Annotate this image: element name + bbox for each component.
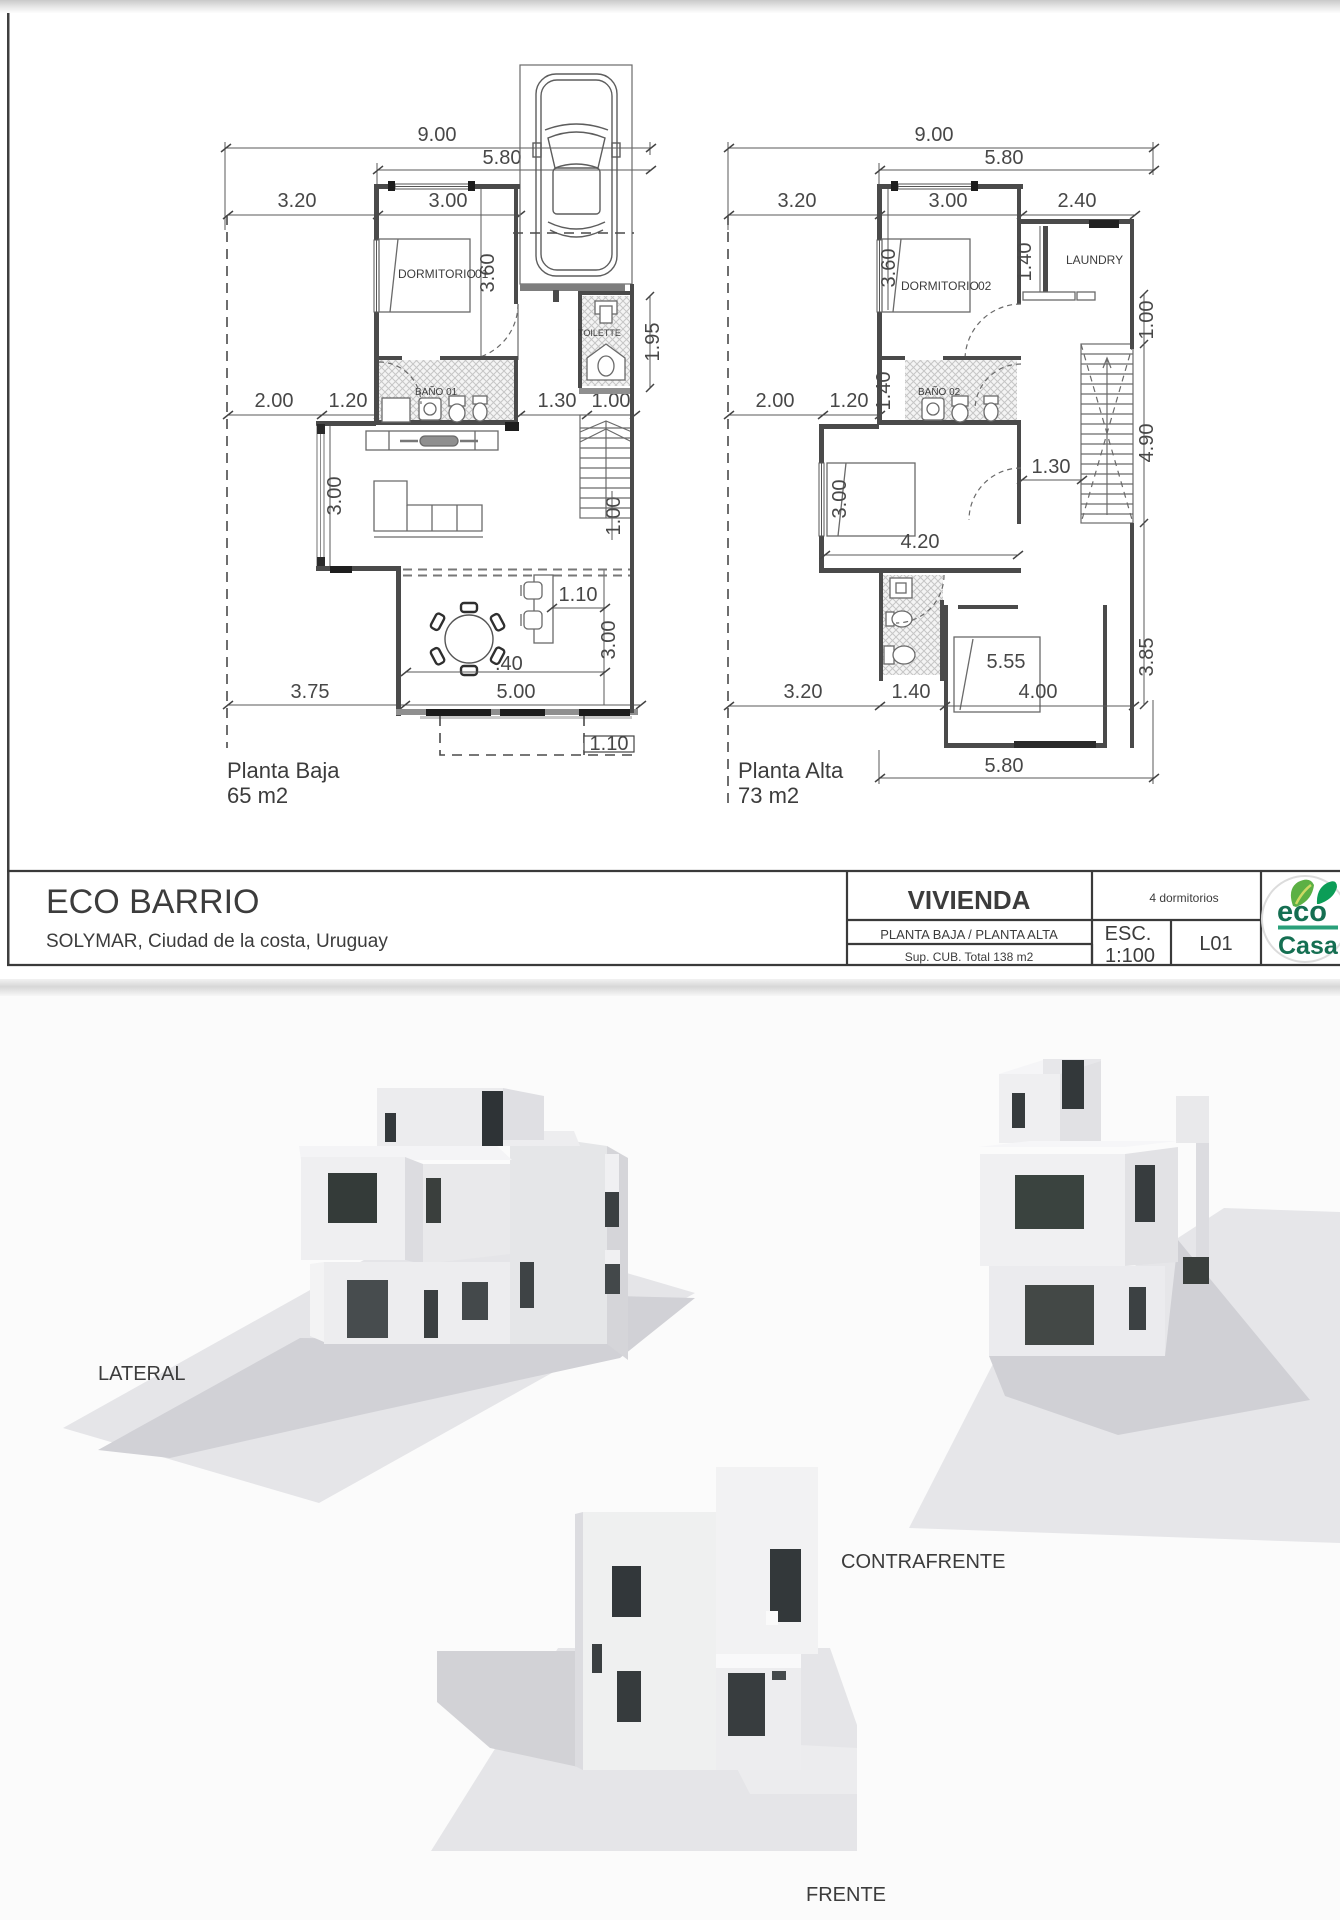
svg-text:65 m2: 65 m2 — [227, 783, 288, 808]
svg-text:5.00: 5.00 — [497, 681, 536, 703]
svg-text:1.10: 1.10 — [559, 584, 598, 606]
svg-text:1.30: 1.30 — [1032, 456, 1071, 478]
svg-text:DORMITORIO: DORMITORIO — [398, 267, 476, 281]
svg-text:4.20: 4.20 — [901, 531, 940, 553]
svg-text:DORMITORIO: DORMITORIO — [901, 279, 979, 293]
svg-text:L01: L01 — [1199, 933, 1232, 955]
svg-text:3.00: 3.00 — [598, 621, 620, 660]
svg-text:3.00: 3.00 — [429, 190, 468, 212]
svg-text:9.00: 9.00 — [915, 124, 954, 146]
svg-text:01: 01 — [475, 267, 489, 281]
svg-text:3.00: 3.00 — [929, 190, 968, 212]
svg-text:3.00: 3.00 — [324, 477, 346, 516]
svg-text:1.40: 1.40 — [1014, 243, 1036, 282]
svg-text:2.40: 2.40 — [1058, 190, 1097, 212]
svg-text:4 dormitorios: 4 dormitorios — [1149, 891, 1218, 905]
svg-text:LATERAL: LATERAL — [98, 1363, 185, 1385]
svg-text:3.00: 3.00 — [829, 480, 851, 519]
svg-text:Planta Alta: Planta Alta — [738, 758, 844, 783]
svg-text:2.00: 2.00 — [255, 390, 294, 412]
svg-text:PLANTA BAJA / PLANTA ALTA: PLANTA BAJA / PLANTA ALTA — [880, 927, 1058, 942]
svg-text:SOLYMAR, Ciudad de la costa, U: SOLYMAR, Ciudad de la costa, Uruguay — [46, 931, 388, 952]
svg-text:1.95: 1.95 — [642, 323, 664, 362]
svg-text:1:100: 1:100 — [1105, 945, 1155, 967]
svg-text:4.90: 4.90 — [1136, 424, 1158, 463]
svg-text:3.20: 3.20 — [784, 681, 823, 703]
svg-text:eco: eco — [1277, 896, 1327, 928]
svg-text:1.40: 1.40 — [892, 681, 931, 703]
svg-text:9.00: 9.00 — [418, 124, 457, 146]
svg-text:2.00: 2.00 — [756, 390, 795, 412]
svg-text:ECO BARRIO: ECO BARRIO — [46, 883, 259, 921]
svg-text:5.80: 5.80 — [483, 147, 522, 169]
svg-text:3.20: 3.20 — [278, 190, 317, 212]
svg-text:ESC.: ESC. — [1105, 923, 1152, 945]
svg-text:1.20: 1.20 — [830, 390, 869, 412]
svg-text:FRENTE: FRENTE — [806, 1884, 886, 1906]
svg-text:Casa: Casa — [1278, 932, 1339, 960]
svg-text:02: 02 — [978, 279, 992, 293]
svg-text:Sup. CUB. Total 138 m2: Sup. CUB. Total 138 m2 — [905, 950, 1034, 964]
svg-text:4.00: 4.00 — [1019, 681, 1058, 703]
svg-text:5.80: 5.80 — [985, 755, 1024, 777]
svg-text:1.20: 1.20 — [329, 390, 368, 412]
svg-text:3.20: 3.20 — [778, 190, 817, 212]
svg-text:1.30: 1.30 — [538, 390, 577, 412]
svg-text:5.80: 5.80 — [985, 147, 1024, 169]
svg-text:CONTRAFRENTE: CONTRAFRENTE — [841, 1551, 1005, 1573]
svg-text:73 m2: 73 m2 — [738, 783, 799, 808]
svg-text:TOILETTE: TOILETTE — [578, 328, 621, 338]
svg-text:1.40: 1.40 — [873, 372, 895, 411]
svg-text:LAUNDRY: LAUNDRY — [1066, 253, 1123, 267]
svg-text:5.55: 5.55 — [987, 651, 1026, 673]
svg-text:1.00: 1.00 — [1136, 301, 1158, 340]
svg-text:1.10: 1.10 — [590, 733, 629, 755]
svg-text:3.75: 3.75 — [291, 681, 330, 703]
svg-text:3.60: 3.60 — [878, 249, 900, 288]
svg-text:VIVIENDA: VIVIENDA — [908, 885, 1031, 915]
svg-text:3.85: 3.85 — [1136, 638, 1158, 677]
svg-text:Planta Baja: Planta Baja — [227, 758, 340, 783]
